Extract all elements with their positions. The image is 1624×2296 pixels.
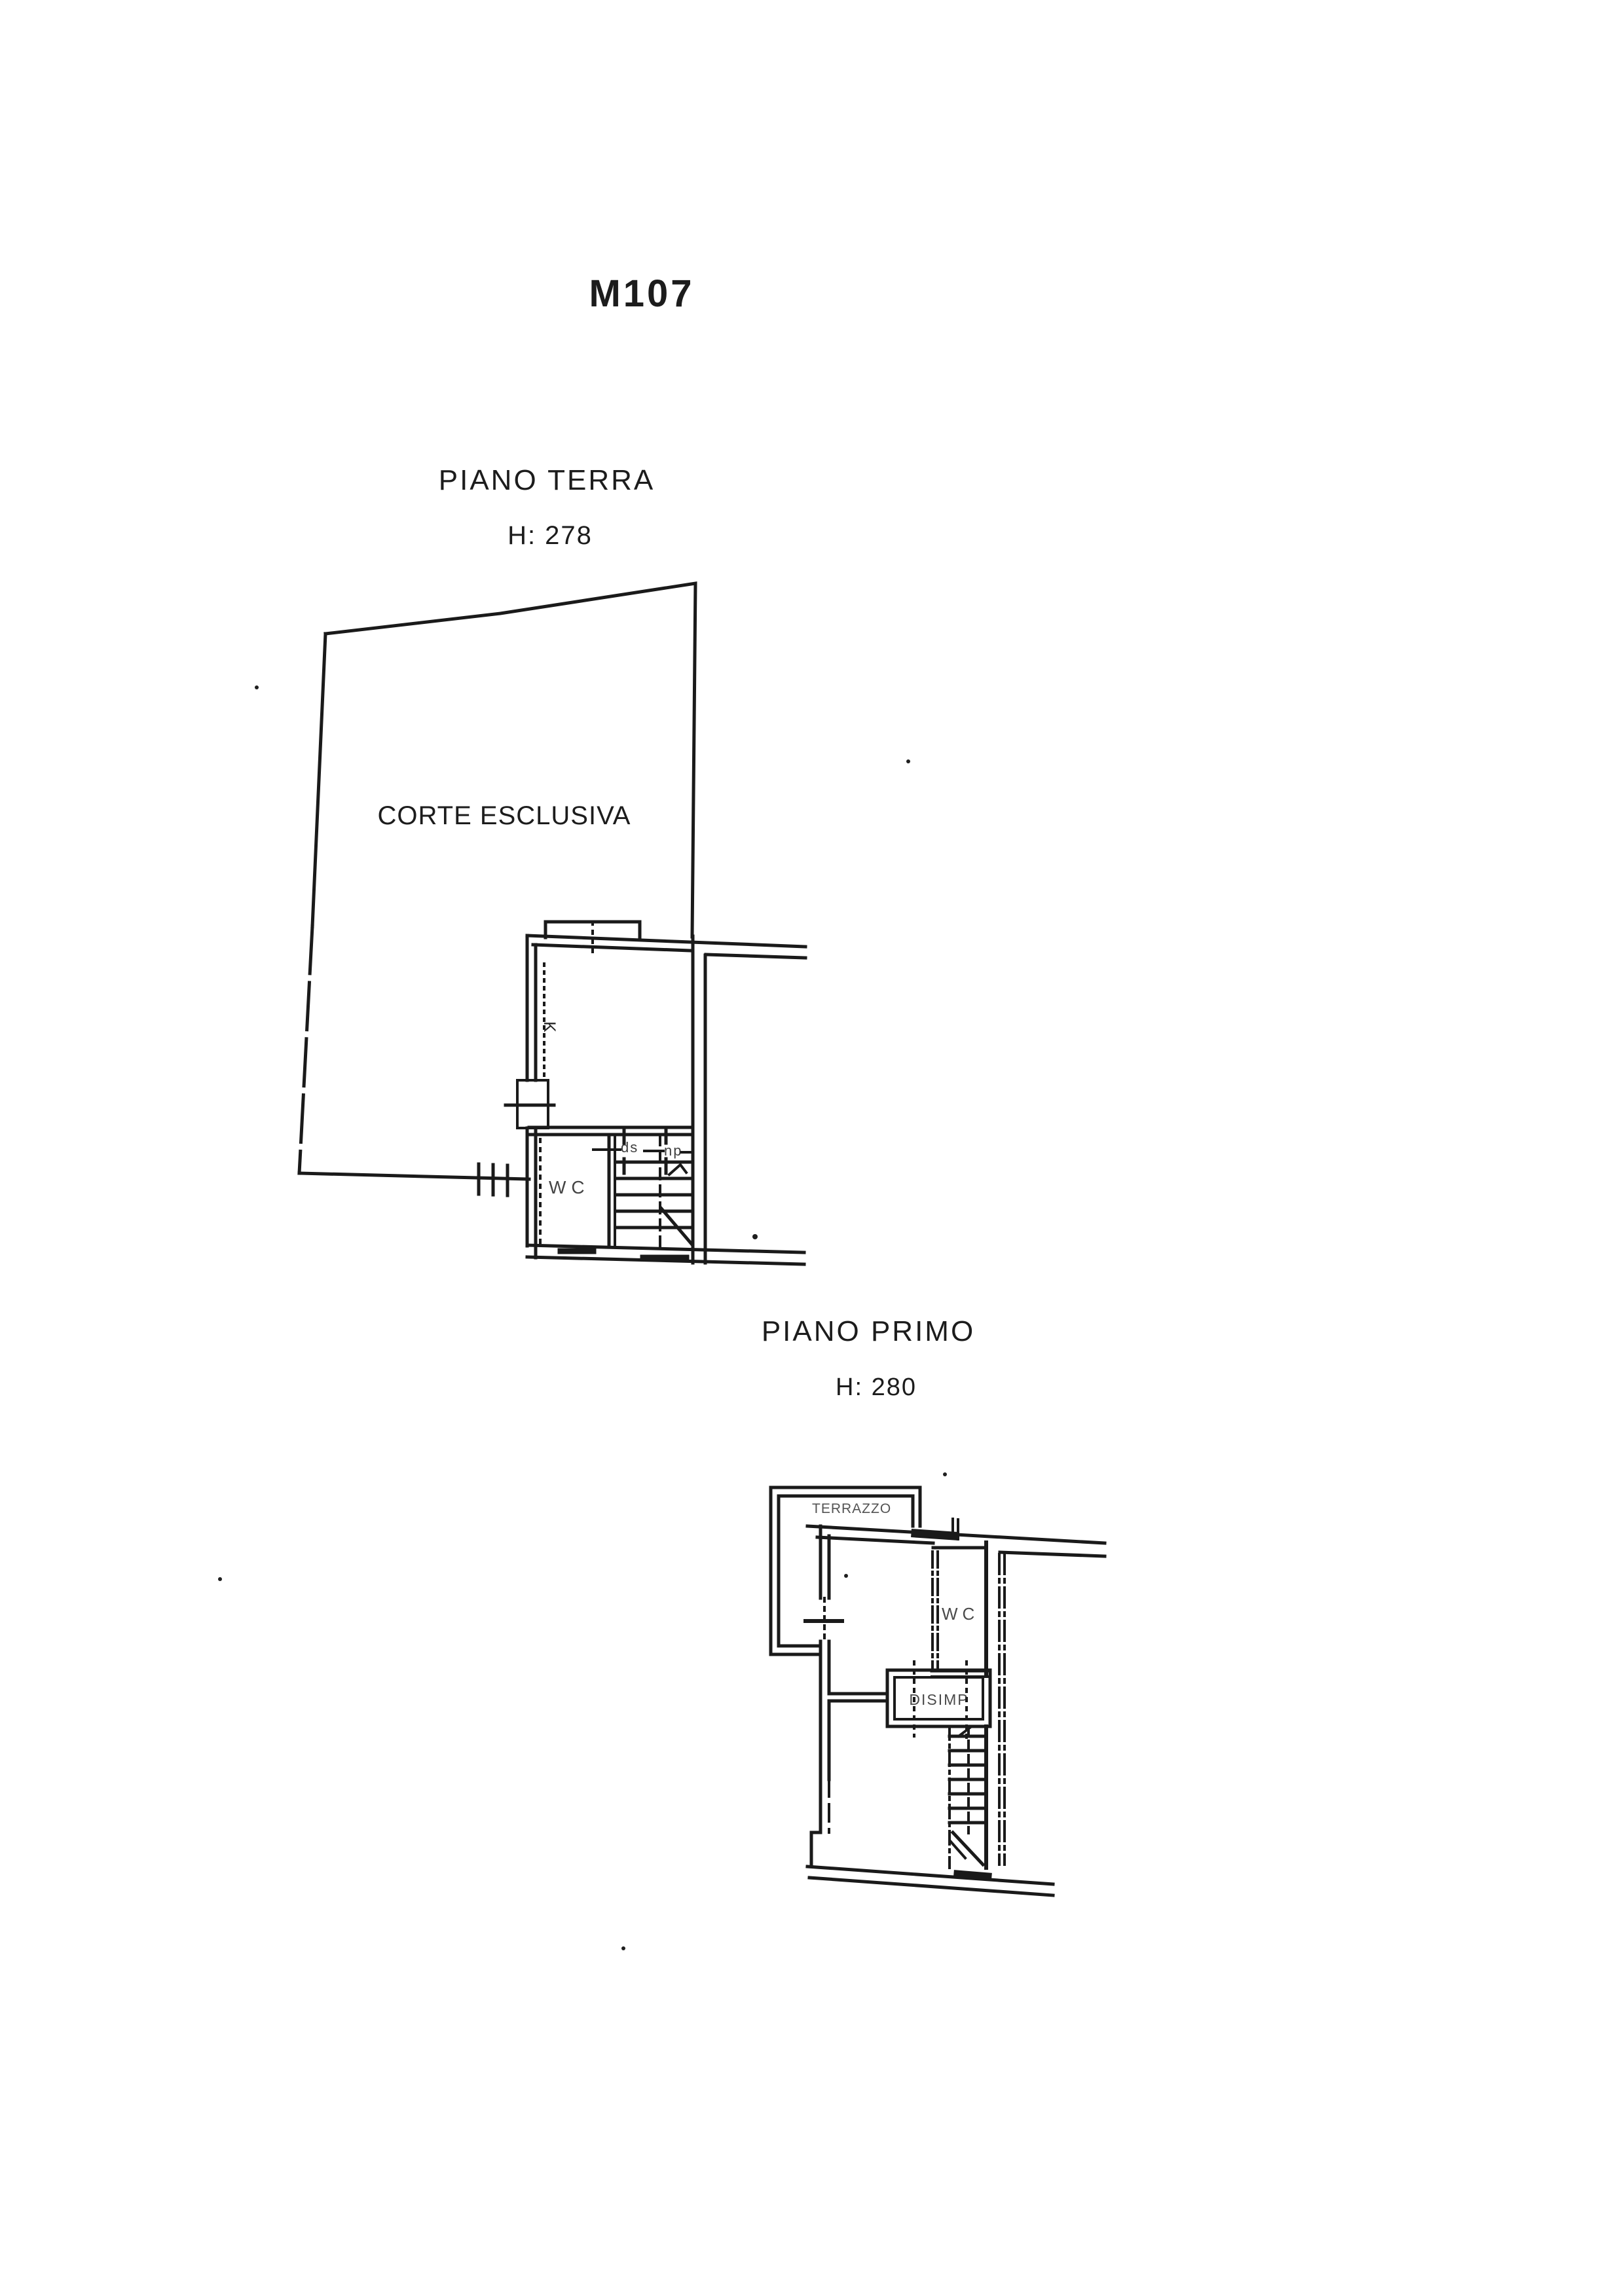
stair-label-np: np <box>664 1144 682 1158</box>
top-wall-inner-right <box>706 955 805 958</box>
first-floor-wc-label: WC <box>942 1605 987 1622</box>
courtyard-label: CORTE ESCLUSIVA <box>373 803 635 829</box>
left-wall-outer <box>811 1526 821 1867</box>
party-wall-dashdot <box>999 1554 1005 1865</box>
scan-speck <box>906 759 910 763</box>
wc-left-wall-dashdot <box>932 1552 938 1671</box>
stair-arrow <box>669 1165 686 1175</box>
courtyard-left-edge-lower <box>299 926 312 1173</box>
ground-floor-plan <box>299 583 805 1264</box>
stair-label-ds: ds <box>621 1140 638 1155</box>
terrace-inner <box>779 1496 913 1646</box>
first-floor-stairs <box>950 1726 986 1868</box>
ground-floor-building-walls <box>506 922 805 1264</box>
courtyard-left-edge-upper <box>312 634 325 926</box>
scan-speck <box>752 1234 758 1239</box>
courtyard-top-right-edge <box>325 583 695 937</box>
top-wall-inner-right <box>1000 1552 1105 1556</box>
scan-speck <box>255 685 259 689</box>
courtyard-outline <box>299 583 695 1179</box>
top-wall-inner-left <box>817 1537 933 1543</box>
terrace-door-threshold <box>915 1533 953 1536</box>
floor-plan-line-art <box>0 0 1624 2296</box>
scan-speck <box>218 1577 222 1581</box>
ground-floor-title: PIANO TERRA <box>406 466 688 495</box>
scan-speck <box>844 1574 848 1578</box>
hallway-label: DISIMP <box>902 1692 976 1707</box>
ground-floor-height: H: 278 <box>471 522 629 549</box>
document-code: M107 <box>557 275 727 313</box>
ground-floor-wc-label: WC <box>549 1178 601 1197</box>
scan-speck <box>621 1946 625 1950</box>
first-floor-height: H: 280 <box>798 1375 955 1400</box>
top-wall-inner-left <box>533 945 691 951</box>
door-threshold <box>957 1873 989 1876</box>
scanned-floor-plan-page: M107 PIANO TERRA H: 278 CORTE ESCLUSIVA … <box>0 0 1624 2296</box>
kitchen-label: K <box>541 1021 557 1032</box>
first-floor-title: PIANO PRIMO <box>733 1317 1003 1346</box>
scan-speck <box>943 1472 947 1476</box>
terrace-label: TERRAZZO <box>812 1502 891 1516</box>
